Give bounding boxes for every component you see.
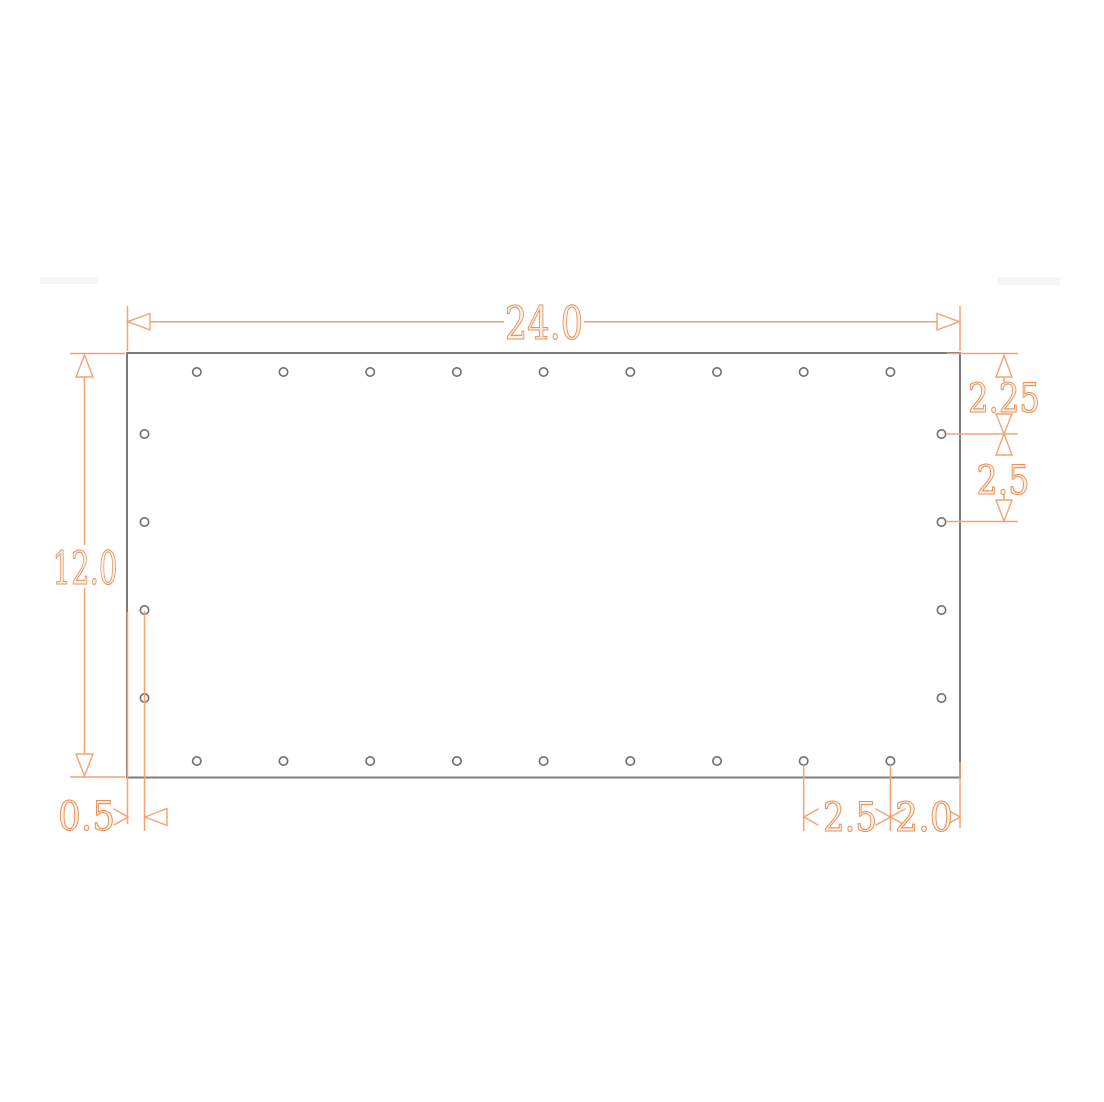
grommet-hole [193, 368, 201, 376]
grommet-hole [800, 368, 808, 376]
dim-label-bottom-corner-offset: 2.0 [895, 795, 953, 841]
background-artifact [40, 277, 98, 284]
arrow-right-icon [937, 314, 960, 330]
dim-label-bottom-edge-offset: 0.5 [58, 794, 115, 840]
grommet-hole [937, 518, 945, 526]
technical-drawing-canvas: 24.0 12.0 2.25 2.5 [0, 0, 1104, 1102]
arrow-up-icon [996, 434, 1012, 455]
arrow-down-icon [76, 754, 93, 776]
grommet-hole [453, 757, 461, 765]
grommet-hole [937, 694, 945, 702]
drawing-svg: 24.0 12.0 2.25 2.5 [0, 0, 1104, 1102]
panel-outline [127, 353, 960, 778]
grommet-hole [713, 757, 721, 765]
dim-left-height: 12.0 [53, 354, 126, 778]
grommet-hole [539, 368, 547, 376]
dim-top-width: 24.0 [128, 296, 961, 351]
grommet-hole [626, 757, 634, 765]
arrow-right-icon [114, 809, 128, 825]
grommet-hole [886, 757, 894, 765]
arrow-up-icon [76, 355, 93, 377]
arrow-left-icon [145, 809, 167, 826]
grommet-hole [366, 757, 374, 765]
grommet-hole [453, 368, 461, 376]
arrow-up-icon [996, 356, 1012, 378]
dim-label-left-height: 12.0 [53, 541, 118, 595]
arrow-right-icon [876, 809, 890, 825]
grommet-hole [193, 757, 201, 765]
dim-label-bottom-hole-spacing: 2.5 [823, 795, 877, 841]
grommet-hole [886, 368, 894, 376]
grommet-hole [140, 518, 148, 526]
arrow-left-icon [128, 314, 151, 330]
arrow-left-icon [804, 809, 818, 825]
dim-label-top-width: 24.0 [505, 296, 583, 350]
grommet-hole [626, 368, 634, 376]
background-artifact [997, 277, 1060, 285]
grommet-hole [140, 430, 148, 438]
grommet-hole [279, 757, 287, 765]
dim-label-right-top-offset: 2.25 [968, 376, 1040, 422]
grommet-hole [279, 368, 287, 376]
grommet-hole [713, 368, 721, 376]
grommet-hole [800, 757, 808, 765]
dim-label-right-hole-spacing: 2.5 [977, 458, 1030, 504]
grommet-hole [937, 430, 945, 438]
grommet-hole [937, 606, 945, 614]
grommet-hole [539, 757, 547, 765]
grommet-hole [366, 368, 374, 376]
